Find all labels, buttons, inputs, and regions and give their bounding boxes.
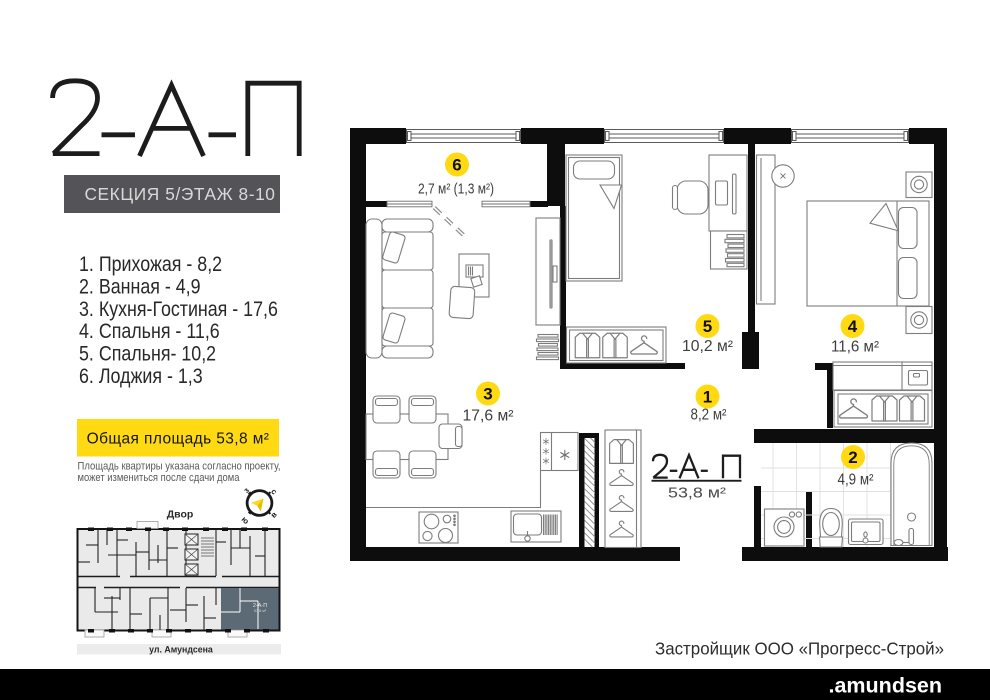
svg-text:2: 2 <box>848 448 857 467</box>
svg-text:5. Спальня- 10,2: 5. Спальня- 10,2 <box>79 342 216 366</box>
svg-text:может измениться после сдачи: может измениться после сдачи дома <box>78 472 240 484</box>
svg-text:1: 1 <box>703 388 712 407</box>
svg-text:Застройщик ООО «Прогресс-Строй: Застройщик ООО «Прогресс-Строй» <box>655 639 944 659</box>
svg-text:4: 4 <box>848 317 858 336</box>
svg-text:10,2 м²: 10,2 м² <box>682 338 733 355</box>
svg-text:5: 5 <box>703 317 712 336</box>
svg-text:3. Кухня-Гостиная - 17,6: 3. Кухня-Гостиная - 17,6 <box>79 297 278 321</box>
svg-text:17,6 м²: 17,6 м² <box>463 408 514 425</box>
svg-text:4,9 м²: 4,9 м² <box>838 472 874 489</box>
svg-text:3: 3 <box>483 385 492 404</box>
svg-text:53,8 м²: 53,8 м² <box>254 609 267 613</box>
svg-text:2. Ванная - 4,9: 2. Ванная - 4,9 <box>79 275 201 299</box>
svg-text:1. Прихожая - 8,2: 1. Прихожая - 8,2 <box>79 253 222 277</box>
svg-text:СЕКЦИЯ 5/ЭТАЖ 8-10: СЕКЦИЯ 5/ЭТАЖ 8-10 <box>84 184 275 204</box>
svg-text:8,2 м²: 8,2 м² <box>691 407 727 424</box>
svg-text:2,7 м² (1,3 м²): 2,7 м² (1,3 м²) <box>418 182 494 198</box>
svg-text:.amundsen: .amundsen <box>829 674 943 698</box>
svg-text:Площадь квартиры указана согла: Площадь квартиры указана согласно проект… <box>78 461 281 473</box>
svg-text:6. Лоджия - 1,3: 6. Лоджия - 1,3 <box>79 365 203 389</box>
svg-text:6: 6 <box>452 156 461 175</box>
svg-text:11,6 м²: 11,6 м² <box>831 339 879 356</box>
svg-text:Двор: Двор <box>167 509 194 521</box>
svg-text:Общая площадь 53,8 м²: Общая площадь 53,8 м² <box>87 431 270 448</box>
svg-text:4. Спальня - 11,6: 4. Спальня - 11,6 <box>79 320 220 344</box>
svg-text:53,8 м²: 53,8 м² <box>668 486 726 502</box>
svg-text:ул. Амундсена: ул. Амундсена <box>149 645 213 655</box>
